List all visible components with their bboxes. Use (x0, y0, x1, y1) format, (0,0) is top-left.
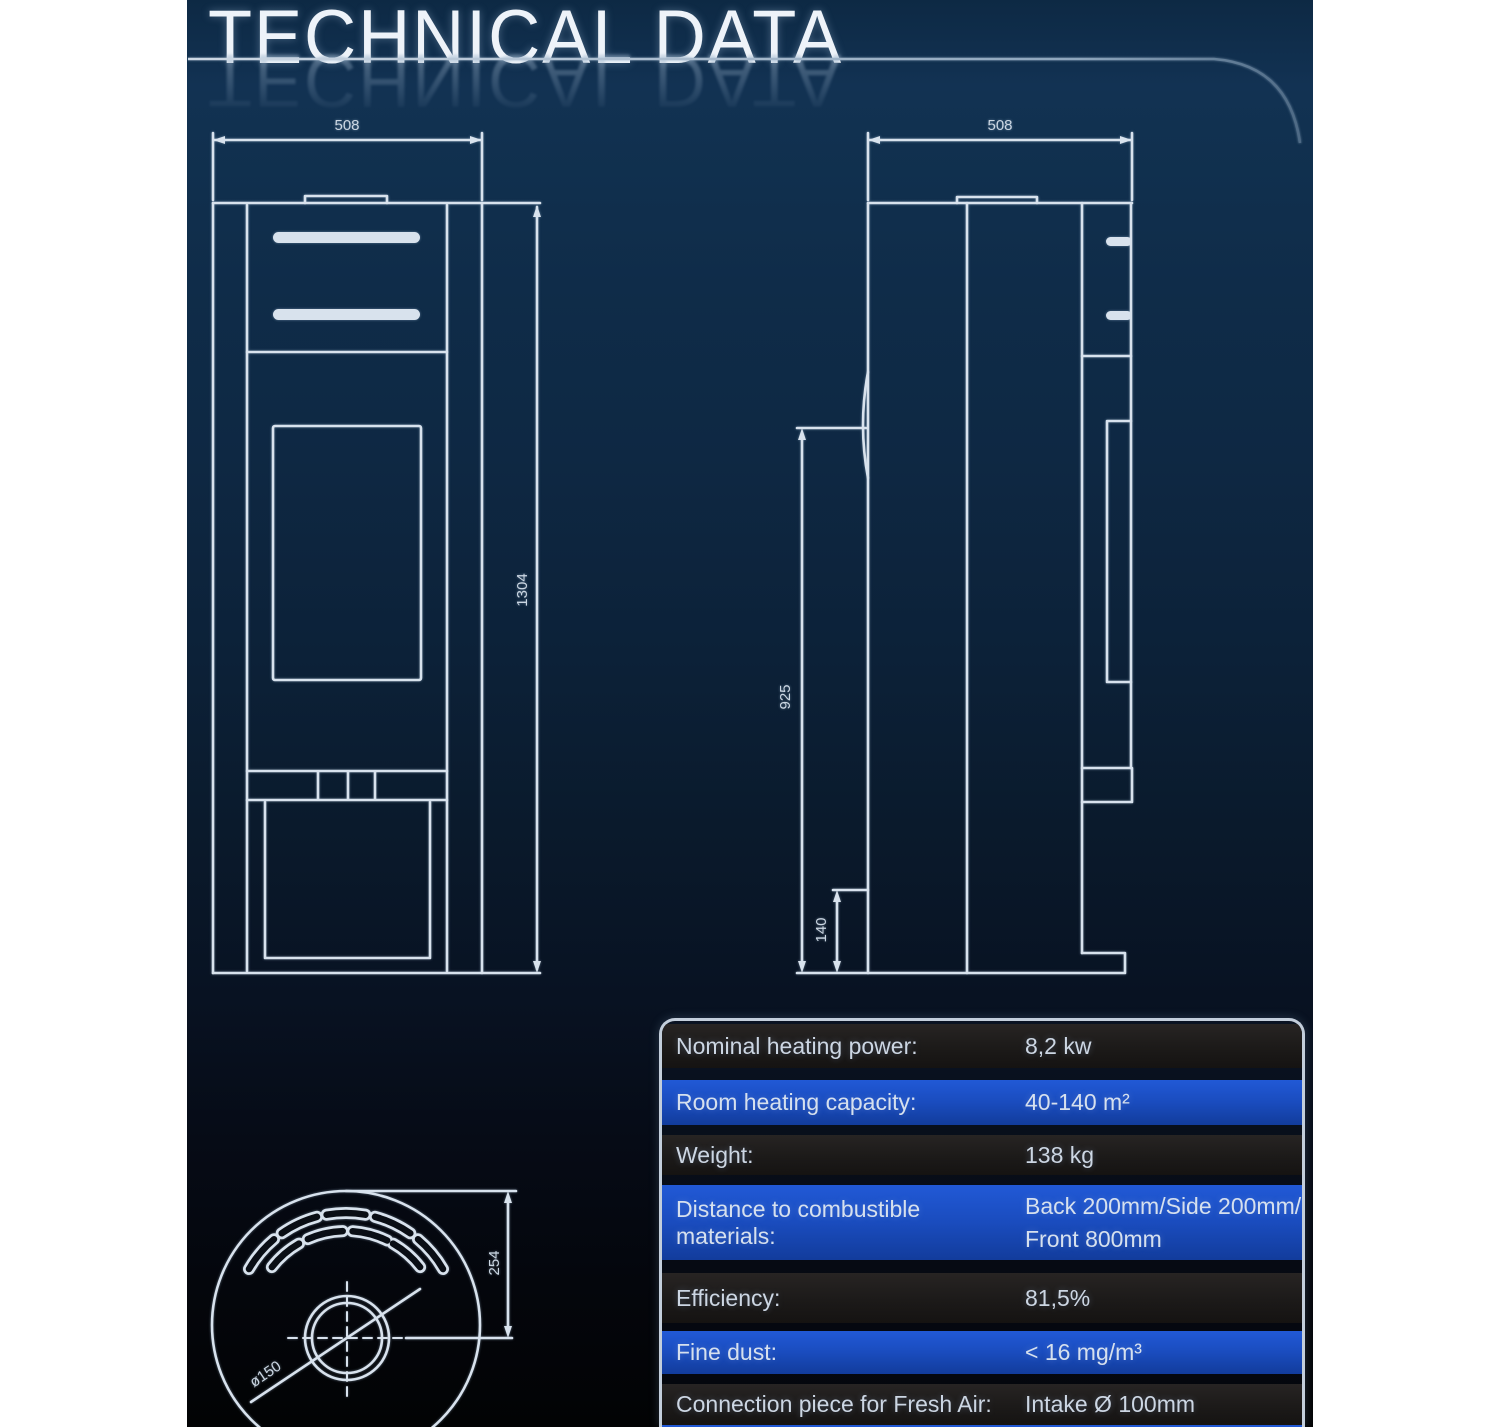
row-label: Fine dust: (662, 1339, 1025, 1366)
table-row: Room heating capacity: 40-140 m² (662, 1080, 1302, 1125)
row-value: Back 200mm/Side 200mm/ Front 800mm (1025, 1190, 1302, 1254)
row-label: Connection piece for Fresh Air: (662, 1391, 1025, 1418)
row-label: Room heating capacity: (662, 1089, 1025, 1116)
row-value-line1: Back 200mm/Side 200mm/ (1025, 1193, 1301, 1219)
row-value: 138 kg (1025, 1142, 1302, 1169)
page-title-reflection: TECHNICAL DATA (208, 36, 843, 123)
table-row: Distance to combustible materials: Back … (662, 1185, 1302, 1260)
row-value: 40-140 m² (1025, 1089, 1302, 1116)
row-label: Weight: (662, 1142, 1025, 1169)
table-row: Weight: 138 kg (662, 1135, 1302, 1175)
row-value: 81,5% (1025, 1285, 1302, 1312)
technical-data-sheet: TECHNICAL DATA TECHNICAL DATA 508 (0, 0, 1500, 1427)
table-row: Fine dust: < 16 mg/m³ (662, 1331, 1302, 1374)
table-row: Nominal heating power: 8,2 kw (662, 1024, 1302, 1068)
row-label: Nominal heating power: (662, 1033, 1025, 1060)
row-label: Efficiency: (662, 1285, 1025, 1312)
table-row: Efficiency: 81,5% (662, 1273, 1302, 1323)
row-value: 8,2 kw (1025, 1033, 1302, 1060)
table-row: Connection piece for Fresh Air: Intake Ø… (662, 1384, 1302, 1425)
row-label: Distance to combustible materials: (662, 1196, 1025, 1250)
row-value-line2: Front 800mm (1025, 1226, 1162, 1252)
spec-table: Nominal heating power: 8,2 kw Room heati… (659, 1018, 1305, 1427)
row-value: < 16 mg/m³ (1025, 1339, 1302, 1366)
row-value: Intake Ø 100mm (1025, 1391, 1302, 1418)
